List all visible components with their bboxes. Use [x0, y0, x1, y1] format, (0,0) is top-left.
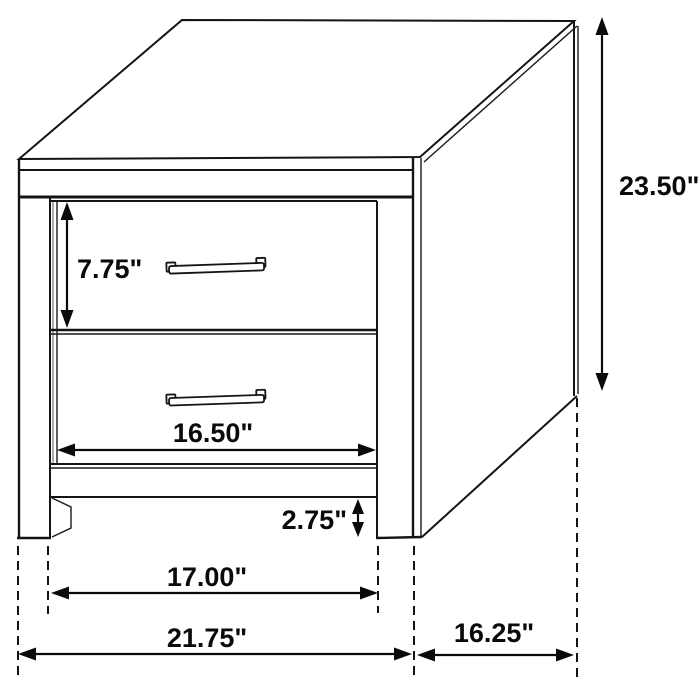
nightstand-diagram-svg: 7.75" 23.50" 16.50" 2.75" 17 [0, 0, 700, 700]
top-surface [19, 20, 574, 159]
dimension-overall-depth: 16.25" [417, 618, 574, 662]
dim-label-overall-height: 23.50" [619, 171, 699, 201]
toe-gap-side-rail [52, 498, 71, 537]
dim-label-leg-span: 17.00" [167, 562, 247, 592]
dimension-drawer-width: 16.50" [57, 418, 376, 457]
right-leg-bottom [376, 537, 422, 538]
dim-label-drawer-height: 7.75" [77, 254, 142, 284]
side-bottom-edge [422, 396, 577, 537]
dim-label-overall-width: 21.75" [167, 623, 247, 653]
handle-bar [169, 263, 264, 274]
dimension-leg-span: 17.00" [51, 562, 378, 600]
arrow-left-icon [57, 444, 75, 457]
arrow-left-icon [18, 648, 36, 661]
drawers [50, 201, 378, 537]
arrow-left-icon [417, 649, 435, 662]
arrow-down-icon [352, 522, 364, 537]
furniture-dimension-diagram: 7.75" 23.50" 16.50" 2.75" 17 [0, 0, 700, 700]
dimension-base-clearance: 2.75" [282, 499, 364, 537]
arrow-down-icon [596, 373, 609, 391]
front-frame [17, 157, 422, 538]
dim-label-drawer-width: 16.50" [173, 418, 253, 448]
arrow-right-icon [556, 649, 574, 662]
dim-label-overall-depth: 16.25" [454, 618, 534, 648]
dim-label-base-clearance: 2.75" [282, 505, 347, 535]
arrow-up-icon [596, 17, 609, 35]
arrow-left-icon [51, 587, 69, 600]
drawer-2-handle [166, 390, 265, 406]
drawer-1-handle [166, 258, 265, 274]
arrow-up-icon [352, 499, 364, 514]
side-panel [421, 21, 578, 537]
top-panel [19, 20, 577, 197]
arrow-right-icon [394, 648, 412, 661]
arrow-up-icon [61, 202, 74, 220]
arrow-down-icon [61, 310, 74, 328]
arrow-right-icon [360, 587, 378, 600]
handle-bar [169, 395, 264, 406]
arrow-right-icon [358, 444, 376, 457]
dimension-overall-height: 23.50" [596, 17, 700, 391]
top-edge-thickness [424, 26, 577, 162]
dimension-drawer-height: 7.75" [61, 202, 143, 328]
dimension-overall-width: 21.75" [18, 623, 412, 661]
